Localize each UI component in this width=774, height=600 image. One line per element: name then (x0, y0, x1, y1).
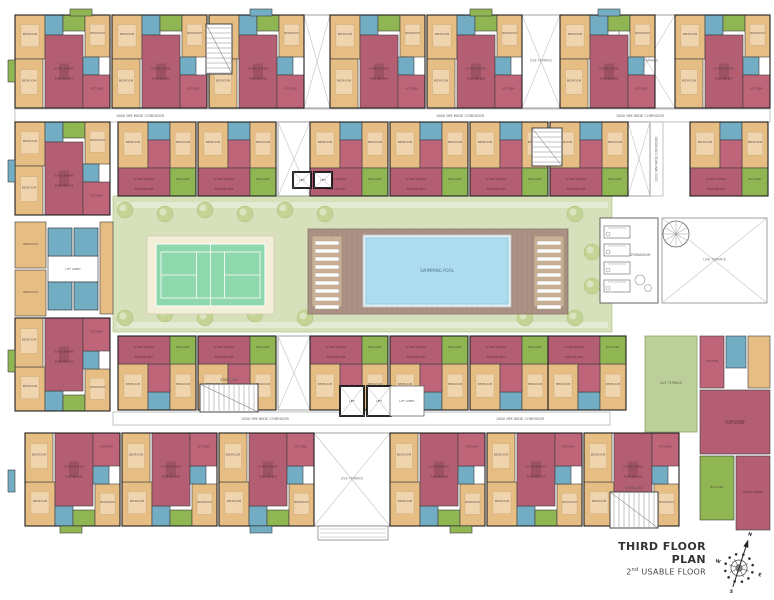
room-living (118, 168, 170, 196)
room-toilet (190, 466, 206, 484)
balcony-projection (250, 526, 272, 533)
tree-highlight (280, 205, 287, 212)
lounger (315, 273, 339, 277)
room-label: LIVING DINING (566, 177, 586, 181)
room-label: LIVING DINING (54, 67, 74, 71)
room-toilet (93, 466, 109, 484)
garden-path (117, 202, 608, 208)
lounger (537, 289, 561, 293)
corridor: 1800 MM WIDE CORRIDOR1800 MM WIDE CORRID… (15, 109, 770, 122)
staircase-label: STAIRCASE (625, 486, 642, 490)
room-toilet (142, 15, 160, 35)
compass-dot (724, 569, 727, 572)
room-kitchen (228, 140, 250, 168)
room-label: BEDROOM (659, 500, 674, 504)
room-label: BEDROOM (397, 453, 412, 457)
room-balcony (170, 510, 192, 526)
lounger (315, 289, 339, 293)
room-label: LIVING DINING (214, 177, 234, 181)
flat-number: FLAT NO 306 (600, 77, 618, 81)
room-kitchen (83, 318, 110, 351)
tree-highlight (570, 209, 577, 216)
room-label: BEDROOM (368, 140, 383, 144)
room-toilet (239, 15, 257, 35)
room-balcony (267, 510, 289, 526)
flat-number: FLAT NO 326 (430, 475, 448, 479)
room-label: BEDROOM (294, 500, 309, 504)
room-toilet (45, 15, 63, 35)
room-kitchen (148, 364, 170, 392)
room-label: KITCHEN (562, 445, 574, 449)
room-label: KITCHEN (465, 445, 477, 449)
room-label: BEDROOM (23, 384, 38, 388)
room-label: BEDROOM (750, 31, 765, 35)
room-label: BEDROOM (90, 385, 105, 389)
room-label: BEDROOM (318, 140, 333, 144)
flat-number: FLAT NO 324 (162, 475, 180, 479)
room-balcony (723, 15, 745, 31)
room-toilet (517, 506, 535, 526)
lounger (537, 241, 561, 245)
room-toilet (580, 122, 602, 140)
room-label: LIVING DINING (623, 465, 643, 469)
gymnasium: GYMNASIUM (600, 218, 658, 303)
room-kitchen (578, 364, 600, 392)
room-balcony (73, 510, 95, 526)
tree (584, 278, 600, 294)
room-bedroom (748, 336, 770, 388)
room-kitchen (148, 140, 170, 168)
apartment-module: BEDROOMBEDROOMLIVING DININGBEDROOMKITCHE… (219, 433, 314, 526)
room-balcony (170, 168, 196, 196)
apartment-module: BEDROOMBEDROOMLIVING DININGBALCONYFLAT N… (470, 336, 548, 410)
room-bedroom (100, 222, 113, 314)
room-label: BALCONY (528, 177, 542, 181)
room-label: BALCONY (256, 177, 270, 181)
tree-highlight (320, 209, 327, 216)
room-label: KITCHEN (100, 445, 112, 449)
room-label: BEDROOM (187, 31, 202, 35)
room-label: LIVING DINING (151, 67, 171, 71)
room-label: BEDROOM (256, 140, 271, 144)
room-toilet (45, 122, 63, 142)
tree (117, 202, 133, 218)
room-toilet (45, 391, 63, 411)
room-toilet (83, 164, 99, 182)
room-toilet (500, 122, 522, 140)
room-toilet (628, 57, 644, 75)
deck-planter (534, 236, 564, 309)
swimming-pool-label: SWIMMING POOL (420, 268, 455, 273)
room-label: BEDROOM (129, 453, 144, 457)
corridor-label: 1800 MM WIDE CORRIDOR (241, 417, 289, 421)
room-balcony (522, 168, 548, 196)
lounger (315, 265, 339, 269)
flat-number: FLAT NO 327 (527, 475, 545, 479)
room-label: LIVING DINING (486, 345, 506, 349)
room-balcony (63, 395, 85, 411)
flat-number: FLAT NO 303 (249, 77, 267, 81)
plan-title: THIRD FLOOR PLAN (584, 540, 706, 566)
room-label: BEDROOM (683, 32, 698, 36)
room-label: LIVING DINING (258, 465, 278, 469)
room-label: LIVING DINING (406, 177, 426, 181)
tree (237, 206, 253, 222)
compass-dot (734, 553, 737, 556)
room-kitchen (555, 433, 582, 466)
tree (117, 310, 133, 326)
live-terrace-label: LIVE TERRACE (703, 258, 726, 262)
room-kitchen (340, 140, 362, 168)
room-label: LIVING DINING (486, 177, 506, 181)
room-kitchen (420, 140, 442, 168)
room-label: BALCONY (368, 177, 382, 181)
room-label: BALCONY (748, 177, 762, 181)
room-label: BEDROOM (608, 140, 623, 144)
room-label: BEDROOM (568, 32, 583, 36)
room-label: BEDROOM (23, 242, 38, 246)
compass-dot (751, 563, 754, 566)
room-label: BALCONY (176, 177, 190, 181)
room-toilet (48, 228, 72, 256)
room-label: LIVING DINING (466, 67, 486, 71)
room-label: BEDROOM (120, 32, 135, 36)
room-toilet (420, 122, 442, 140)
room-label: KITCHEN (294, 445, 306, 449)
lounger (315, 305, 339, 309)
room-label: LIVING DINING (743, 490, 763, 494)
room-label: BEDROOM (562, 500, 577, 504)
room-label: BEDROOM (495, 499, 510, 503)
room-balcony (442, 168, 468, 196)
room-label: KITCHEN (90, 194, 102, 198)
room-label: BEDROOM (216, 79, 231, 83)
lounger (315, 241, 339, 245)
corridor-label: 1800 MM WIDE CORRIDOR (436, 114, 484, 118)
apartment-module: BEDROOMBEDROOMLIVING DININGBEDROOMKITCHE… (15, 15, 110, 108)
flat-number: FLAT NO 301 (55, 77, 73, 81)
balcony-projection (8, 470, 15, 492)
flat-number: FLAT NO 317 (135, 355, 153, 359)
room-toilet (152, 506, 170, 526)
lift-lobby: LIFT LOBBY (390, 386, 424, 416)
title-block: THIRD FLOOR PLAN 2nd USABLE FLOOR (584, 540, 706, 577)
room-toilet (249, 506, 267, 526)
flat-number: FLAT NO 319 (327, 355, 345, 359)
room-living (690, 168, 742, 196)
compass-direction-S: S (729, 588, 734, 595)
room-balcony (742, 168, 768, 196)
room-kitchen (500, 140, 522, 168)
tree-highlight (587, 281, 594, 288)
room-label: BALCONY (606, 345, 620, 349)
room-label: BEDROOM (592, 499, 607, 503)
room-living (198, 168, 250, 196)
lift-label: LIFT (320, 178, 326, 182)
apartment-module: BEDROOMBEDROOMLIVING DININGBEDROOMKITCHE… (15, 318, 110, 411)
apartment-module: BEDROOMBEDROOMLIVING DININGBEDROOMKITCHE… (487, 433, 582, 526)
room-kitchen (83, 182, 110, 215)
room-kitchen (83, 75, 110, 108)
room-label: BEDROOM (494, 453, 509, 457)
room-label: LIVING DINING (134, 177, 154, 181)
tree-highlight (300, 313, 307, 320)
room-label: BEDROOM (448, 382, 463, 386)
compass-dot (740, 580, 743, 583)
room-kitchen (458, 433, 485, 466)
flat-number: FLAT NO 321 (487, 355, 505, 359)
room-label: LIVING DINING (54, 174, 74, 178)
tree-highlight (120, 205, 127, 212)
room-label: BEDROOM (398, 382, 413, 386)
room-label: LIVING DINING (64, 465, 84, 469)
corridor-label: 1800 MM WIDE CORRIDOR (496, 417, 544, 421)
corridor-label: 1800 MM WIDE CORRIDOR (655, 136, 659, 182)
lift-label: LIFT (376, 399, 382, 403)
room-balcony (535, 510, 557, 526)
room-toilet (228, 122, 250, 140)
room-label: KITCHEN (197, 445, 209, 449)
room-label: BEDROOM (748, 140, 763, 144)
compass-direction-N: N (747, 531, 753, 538)
apartment-module: BEDROOMBEDROOMLIVING DININGBEDROOMKITCHE… (25, 433, 120, 526)
room-label: BEDROOM (337, 79, 352, 83)
room-kitchen (580, 140, 602, 168)
lift-lobby-label: LIFT LOBBY (65, 267, 81, 271)
compass-rose: NESW (707, 524, 773, 600)
room-label: BEDROOM (567, 79, 582, 83)
room-kitchen (500, 364, 522, 392)
lounger (315, 297, 339, 301)
lounger (537, 281, 561, 285)
room-label: BEDROOM (206, 140, 221, 144)
room-toilet (180, 57, 196, 75)
room-label: BEDROOM (435, 32, 450, 36)
room-toilet (495, 57, 511, 75)
flat-number: FLAT NO 311 (407, 187, 425, 191)
room-toilet (590, 15, 608, 35)
staircase (206, 24, 232, 74)
planter-box (312, 236, 342, 307)
room-label: KITCHEN (405, 87, 417, 91)
apartment-module: BEDROOMBEDROOMLIVING DININGBALCONYFLAT N… (198, 122, 276, 196)
room-label: BEDROOM (448, 140, 463, 144)
balcony-projection (450, 526, 472, 533)
balcony-projection (60, 526, 82, 533)
room-label: BEDROOM (197, 500, 212, 504)
compass-north-needle (733, 545, 747, 587)
apartment-module: BEDROOMBEDROOMLIVING DININGBALCONYFLAT N… (118, 336, 196, 410)
room-toilet (398, 57, 414, 75)
balcony-projection (470, 9, 492, 16)
room-label: BEDROOM (23, 32, 38, 36)
live-terrace-label: LIVE TERRACE (341, 477, 364, 481)
flat-number: FLAT NO 315 (55, 360, 73, 364)
room-toilet (743, 57, 759, 75)
apartment-module: BEDROOMBEDROOMLIVING DININGBEDROOMKITCHE… (15, 122, 110, 215)
room-label: BEDROOM (478, 140, 493, 144)
room-toilet (74, 282, 98, 310)
compass-direction-E: E (757, 572, 762, 579)
lounger (537, 257, 561, 261)
room-balcony (257, 15, 279, 31)
room-label: BEDROOM (100, 500, 115, 504)
room-label: BALCONY (528, 345, 542, 349)
compass-dot (748, 557, 751, 560)
room-kitchen (628, 75, 655, 108)
room-balcony (600, 336, 626, 364)
room-label: BEDROOM (130, 499, 145, 503)
apartment-module: BEDROOMBEDROOMLIVING DININGBEDROOMKITCHE… (560, 15, 655, 108)
room-toilet (55, 506, 73, 526)
room-balcony (170, 336, 196, 364)
lounger (315, 281, 339, 285)
room-kitchen (287, 433, 314, 466)
room-balcony (63, 122, 85, 138)
live-terrace (304, 15, 330, 108)
room-balcony (475, 15, 497, 31)
tree (157, 206, 173, 222)
room-toilet (360, 15, 378, 35)
room-toilet (148, 392, 170, 410)
live-terrace (278, 336, 310, 410)
balcony-projection (70, 9, 92, 16)
room-toilet (277, 57, 293, 75)
room-label: BEDROOM (33, 499, 48, 503)
room-label: KITCHEN (90, 87, 102, 91)
room-label: BEDROOM (226, 453, 241, 457)
room-label: KITCHEN (659, 445, 671, 449)
compass-dot (751, 571, 754, 574)
room-label: BEDROOM (338, 32, 353, 36)
compass-dot (724, 562, 727, 565)
room-label: LIVING DINING (599, 67, 619, 71)
staircase-label: STAIRCASE (220, 378, 237, 382)
apartment-module: BEDROOMBEDROOMLIVING DININGBEDROOMKITCHE… (112, 15, 207, 108)
room-toilet (555, 466, 571, 484)
flat-number: FLAT NO 313 (567, 187, 585, 191)
apartment-module: BEDROOMBEDROOMLIVING DININGBALCONYFLAT N… (390, 122, 468, 196)
balcony-projection (8, 350, 15, 372)
room-label: LIVING DINING (714, 67, 734, 71)
flat-number: FLAT NO 323 (65, 475, 83, 479)
lounger (537, 297, 561, 301)
room-label: KITCHEN (706, 359, 718, 363)
room-toilet (705, 15, 723, 35)
room-label: KITCHEN (502, 87, 514, 91)
lounger (537, 273, 561, 277)
room-label: LIVING DINING (526, 465, 546, 469)
apartment-module: BEDROOMBEDROOMLIVING DININGBEDROOMKITCHE… (675, 15, 770, 108)
flat-number: FLAT NO 316 (707, 187, 725, 191)
room-balcony (250, 168, 276, 196)
corridor: 1800 MM WIDE CORRIDOR (650, 122, 663, 196)
room-toilet (500, 392, 522, 410)
room-label: BEDROOM (465, 500, 480, 504)
deck-planter (312, 236, 342, 309)
flat-number: FLAT NO 318 (215, 355, 233, 359)
lift-lobby-label: LIFT LOBBY (399, 399, 415, 403)
room-label: LIVING DINING (429, 465, 449, 469)
room-label: KITCHEN (635, 87, 647, 91)
green-terrace-label: LIVE TERRACE (660, 381, 683, 385)
room-kitchen (398, 75, 425, 108)
room-toilet (458, 466, 474, 484)
room-balcony (63, 15, 85, 31)
room-balcony (378, 15, 400, 31)
room-label: BEDROOM (227, 499, 242, 503)
room-label: BEDROOM (318, 382, 333, 386)
tree-highlight (120, 313, 127, 320)
room-toilet (74, 228, 98, 256)
flat-number: FLAT NO 305 (467, 77, 485, 81)
garden-path (117, 322, 608, 328)
room-label: BEDROOM (90, 31, 105, 35)
room-label: BEDROOM (176, 140, 191, 144)
flat-number: FLAT NO 320 (407, 355, 425, 359)
spiral-staircase (663, 221, 689, 247)
room-label: BALCONY (176, 345, 190, 349)
room-kitchen (720, 140, 742, 168)
room-toilet (287, 466, 303, 484)
lounger (315, 257, 339, 261)
room-label: LIVING DINING (564, 345, 584, 349)
room-balcony (438, 510, 460, 526)
room-label: BALCONY (256, 345, 270, 349)
flat-number: FLAT NO 312 (487, 187, 505, 191)
lounger (537, 249, 561, 253)
room-living (198, 336, 250, 364)
lounger (537, 305, 561, 309)
floor-plan-drawing: SWIMMING POOL1800 MM WIDE CORRIDOR1800 M… (0, 0, 774, 600)
room-toilet (83, 57, 99, 75)
tree-highlight (240, 209, 247, 216)
lift-label: LIFT (349, 399, 355, 403)
compass-dot (747, 577, 750, 580)
lounger (537, 265, 561, 269)
room-label: BEDROOM (32, 453, 47, 457)
room-label: LIVING DINING (161, 465, 181, 469)
compass-dot (727, 576, 730, 579)
room-label: BALCONY (608, 177, 622, 181)
room-toilet (83, 351, 99, 369)
room-balcony (160, 15, 182, 31)
lift-lobby: LIFT LOBBY (48, 256, 98, 282)
apartment-module: BEDROOMBEDROOMLIVING DININGBEDROOMKITCHE… (427, 15, 522, 108)
room-toilet (340, 122, 362, 140)
room-kitchen (180, 75, 207, 108)
room-label: BEDROOM (126, 382, 141, 386)
room-label: BEDROOM (405, 31, 420, 35)
balcony-projection (8, 160, 15, 182)
tree (197, 202, 213, 218)
flat-number: FLAT NO 325 (259, 475, 277, 479)
compass-direction-W: W (715, 558, 722, 565)
room-toilet (726, 336, 746, 368)
room-kitchen (743, 75, 770, 108)
room-label: BEDROOM (478, 382, 493, 386)
room-toilet (148, 122, 170, 140)
room-label: BEDROOM (398, 140, 413, 144)
room-label: LIVING DINING (406, 345, 426, 349)
room-label: BEDROOM (556, 382, 571, 386)
room-label: BEDROOM (22, 186, 37, 190)
room-label: KITCHEN (90, 330, 102, 334)
lift-label: LIFT (299, 178, 305, 182)
room-label: BEDROOM (23, 290, 38, 294)
room-toilet (457, 15, 475, 35)
tree (567, 310, 583, 326)
